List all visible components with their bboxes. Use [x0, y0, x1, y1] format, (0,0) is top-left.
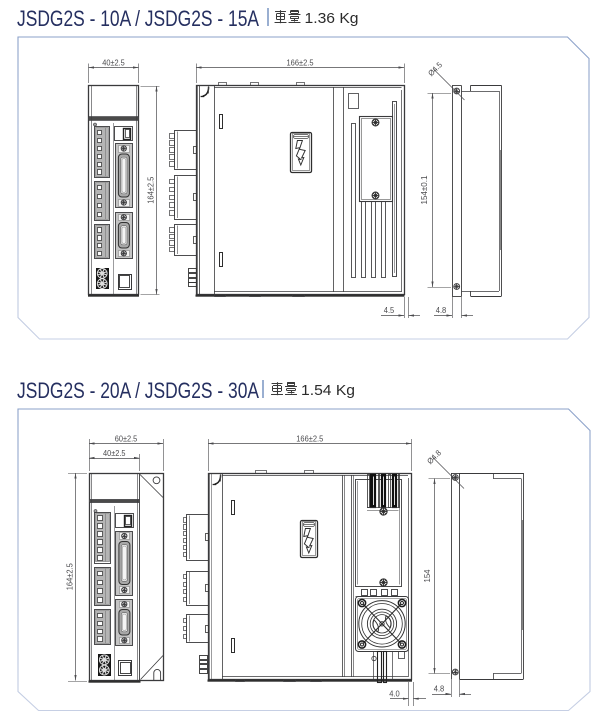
svg-text:4.5: 4.5	[384, 306, 395, 315]
svg-text:1.36 Kg: 1.36 Kg	[305, 10, 359, 27]
svg-text:1.54 Kg: 1.54 Kg	[301, 382, 355, 399]
svg-text:154: 154	[423, 569, 432, 582]
svg-text:154±0.1: 154±0.1	[420, 175, 429, 204]
svg-text:4.8: 4.8	[434, 685, 445, 694]
svg-text:JSDG2S - 20A / JSDG2S - 30A: JSDG2S - 20A / JSDG2S - 30A	[17, 378, 259, 403]
svg-text:40±2.5: 40±2.5	[103, 449, 126, 458]
svg-text:166±2.5: 166±2.5	[296, 434, 323, 443]
svg-text:4.0: 4.0	[389, 689, 400, 698]
svg-text:40±2.5: 40±2.5	[102, 58, 125, 67]
svg-text:164±2.5: 164±2.5	[65, 563, 74, 590]
svg-text:164±2.5: 164±2.5	[146, 176, 155, 203]
svg-text:JSDG2S - 10A / JSDG2S - 15A: JSDG2S - 10A / JSDG2S - 15A	[17, 6, 259, 31]
svg-text:166±2.5: 166±2.5	[287, 58, 314, 67]
svg-text:60±2.5: 60±2.5	[115, 434, 138, 443]
svg-text:4.8: 4.8	[436, 306, 447, 315]
